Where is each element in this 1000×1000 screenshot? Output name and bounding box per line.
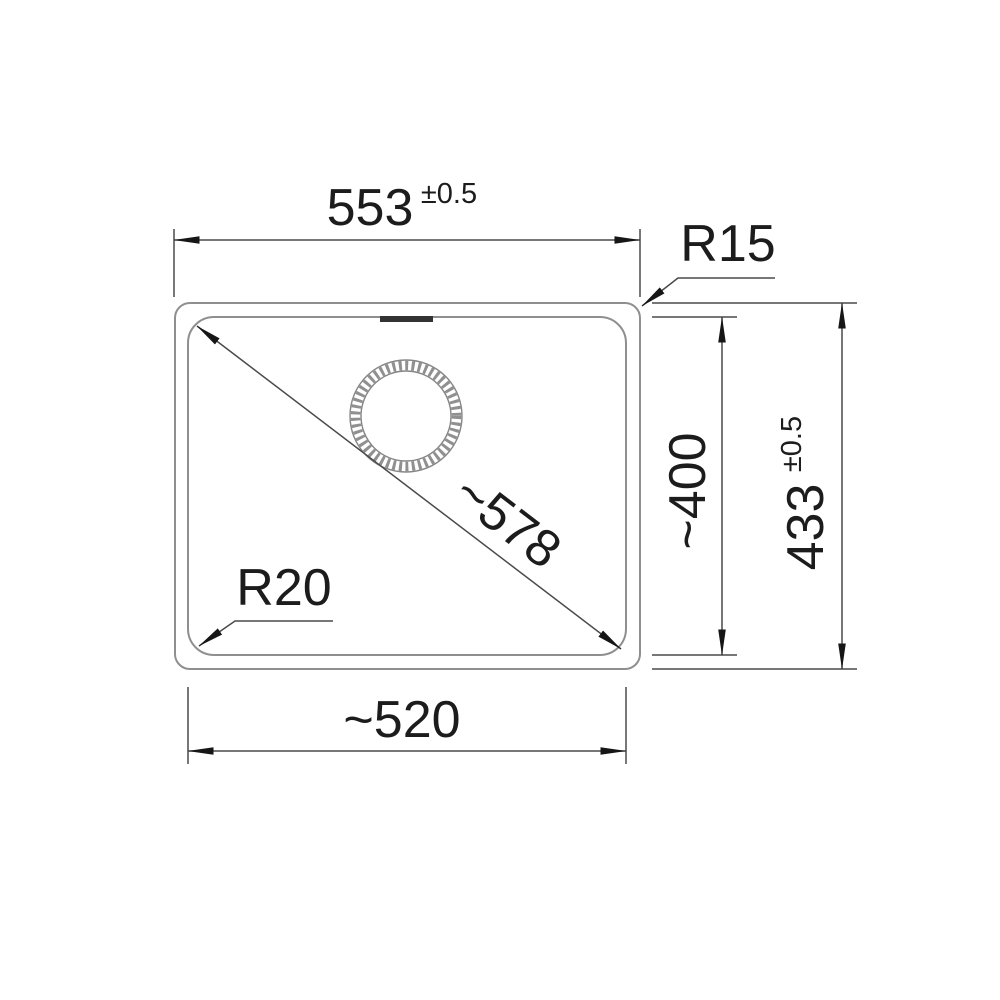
overflow-slot-mark (380, 316, 433, 322)
radius-callout-inner: R20 (199, 559, 333, 646)
technical-drawing-canvas: 553 ±0.5 R15 ~578 R20 ~520 (0, 0, 1000, 1000)
dimension-bottom-width: ~520 (188, 687, 626, 764)
leader-line (642, 278, 775, 306)
dimension-top-width: 553 ±0.5 (174, 178, 640, 297)
leader-line (199, 621, 333, 646)
drain-hole-inner-circle (361, 371, 451, 461)
drawing-page: 553 ±0.5 R15 ~578 R20 ~520 (0, 0, 1000, 1000)
drain-hole-hatch-ring (356, 366, 457, 467)
radius-value: R15 (680, 215, 775, 273)
dimension-value: 433 (777, 484, 835, 571)
dimension-value: 553 (327, 179, 414, 237)
dimension-value: ~520 (343, 691, 460, 749)
dimension-value: ~400 (659, 432, 717, 549)
dimension-tolerance: ±0.5 (776, 416, 808, 472)
dimension-inner-depth: ~400 (652, 317, 737, 655)
dimension-tolerance: ±0.5 (421, 178, 477, 210)
radius-callout-outer: R15 (642, 215, 776, 306)
radius-value: R20 (236, 559, 331, 617)
